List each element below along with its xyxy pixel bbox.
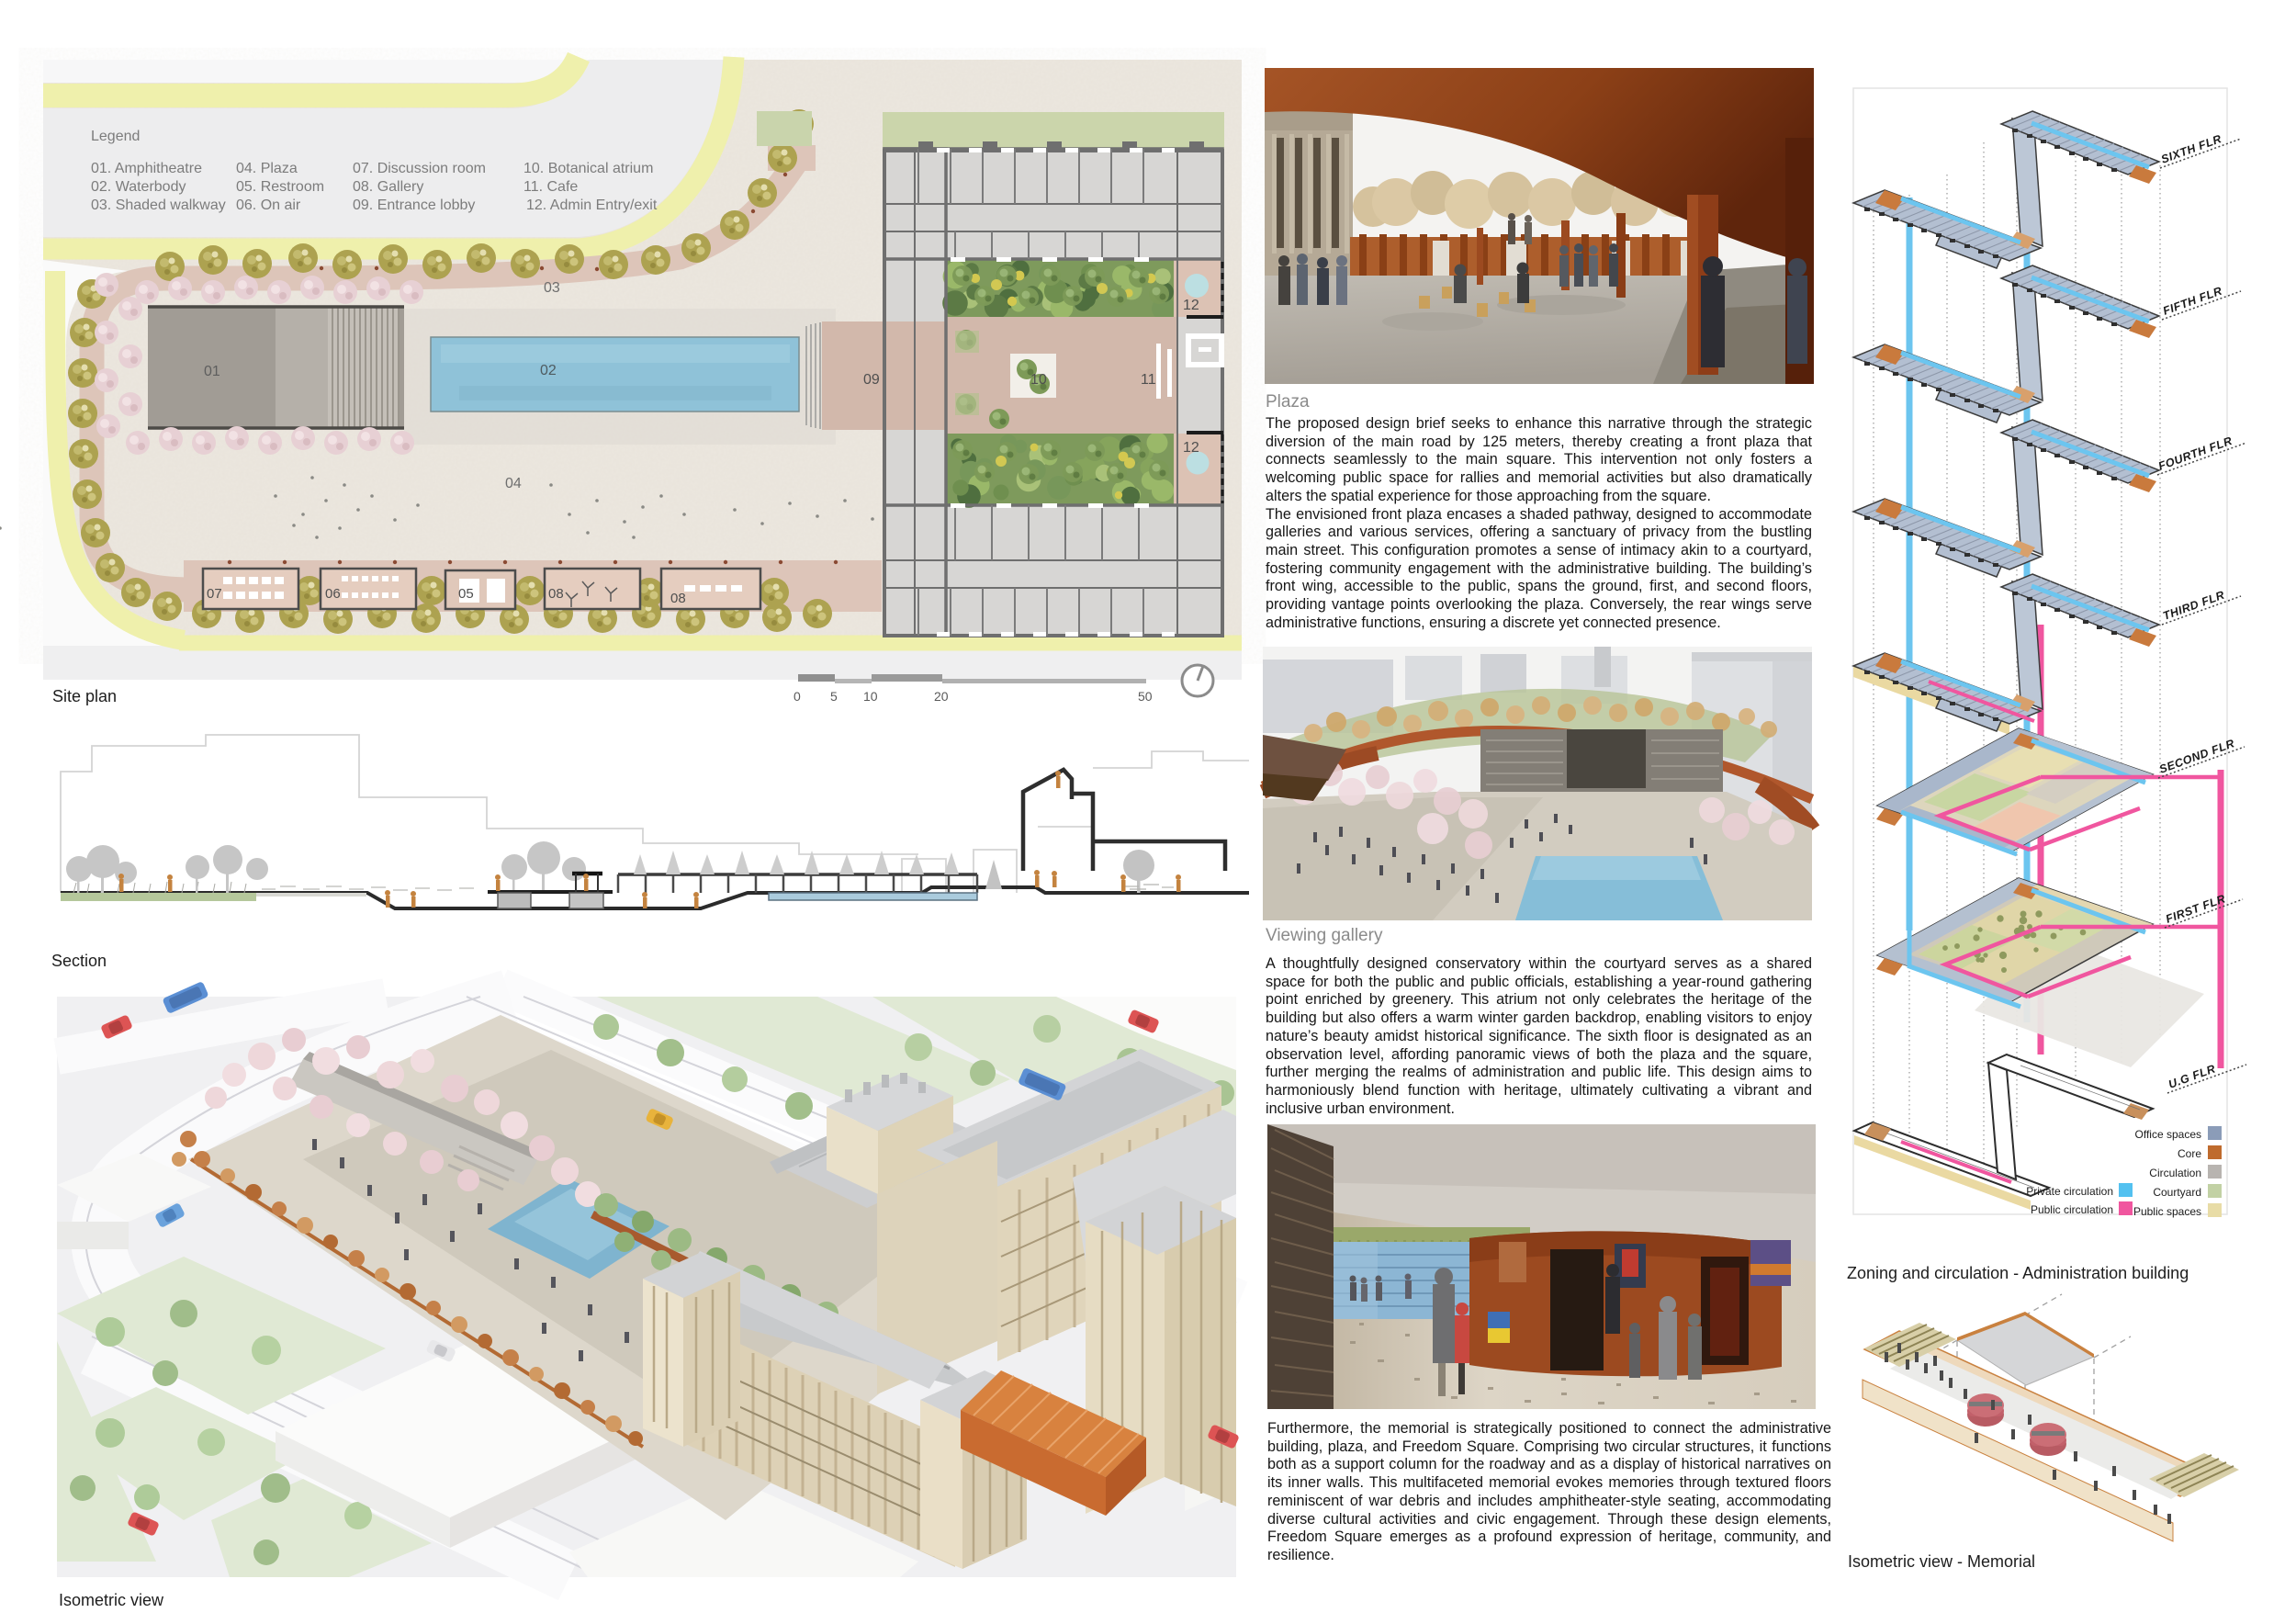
svg-text:Circulation: Circulation: [2149, 1167, 2201, 1179]
svg-text:08. Gallery: 08. Gallery: [353, 179, 423, 195]
svg-text:06: 06: [325, 586, 341, 602]
svg-text:12: 12: [1183, 440, 1199, 456]
svg-text:Private circulation: Private circulation: [2026, 1185, 2113, 1198]
svg-text:09. Entrance lobby: 09. Entrance lobby: [353, 197, 475, 213]
svg-text:12: 12: [1183, 298, 1199, 313]
svg-text:Site plan: Site plan: [52, 687, 117, 705]
svg-text:02: 02: [540, 363, 557, 378]
svg-text:07. Discussion room: 07. Discussion room: [353, 161, 486, 176]
svg-text:06. On air: 06. On air: [236, 197, 301, 213]
svg-text:10. Botanical atrium: 10. Botanical atrium: [523, 161, 653, 176]
svg-text:Public spaces: Public spaces: [2133, 1205, 2201, 1218]
svg-text:Core: Core: [2178, 1147, 2201, 1160]
svg-text:Public circulation: Public circulation: [2031, 1203, 2113, 1216]
svg-text:11. Cafe: 11. Cafe: [523, 179, 578, 195]
svg-text:Courtyard: Courtyard: [2153, 1186, 2201, 1199]
svg-text:08: 08: [548, 586, 564, 602]
svg-text:04: 04: [505, 476, 522, 491]
svg-text:03. Shaded walkway: 03. Shaded walkway: [91, 197, 226, 213]
svg-text:11: 11: [1141, 372, 1156, 388]
svg-text:02. Waterbody: 02. Waterbody: [91, 179, 186, 195]
svg-text:09: 09: [863, 372, 880, 388]
svg-text:04. Plaza: 04. Plaza: [236, 161, 298, 176]
svg-text:Legend: Legend: [91, 129, 140, 144]
svg-text:10: 10: [863, 689, 878, 704]
svg-text:12. Admin Entry/exit: 12. Admin Entry/exit: [526, 197, 658, 213]
svg-text:Office spaces: Office spaces: [2135, 1128, 2201, 1141]
svg-text:01. Amphitheatre: 01. Amphitheatre: [91, 161, 202, 176]
svg-text:0: 0: [793, 689, 801, 704]
svg-text:5: 5: [830, 689, 838, 704]
svg-text:03: 03: [544, 280, 560, 296]
svg-text:07: 07: [207, 586, 222, 602]
svg-text:08: 08: [670, 591, 686, 606]
svg-text:05: 05: [458, 586, 474, 602]
svg-text:10: 10: [1030, 372, 1047, 388]
svg-text:20: 20: [934, 689, 949, 704]
svg-text:05. Restroom: 05. Restroom: [236, 179, 324, 195]
svg-text:Section: Section: [51, 952, 107, 970]
svg-text:50: 50: [1138, 689, 1153, 704]
svg-text:01: 01: [204, 364, 220, 379]
